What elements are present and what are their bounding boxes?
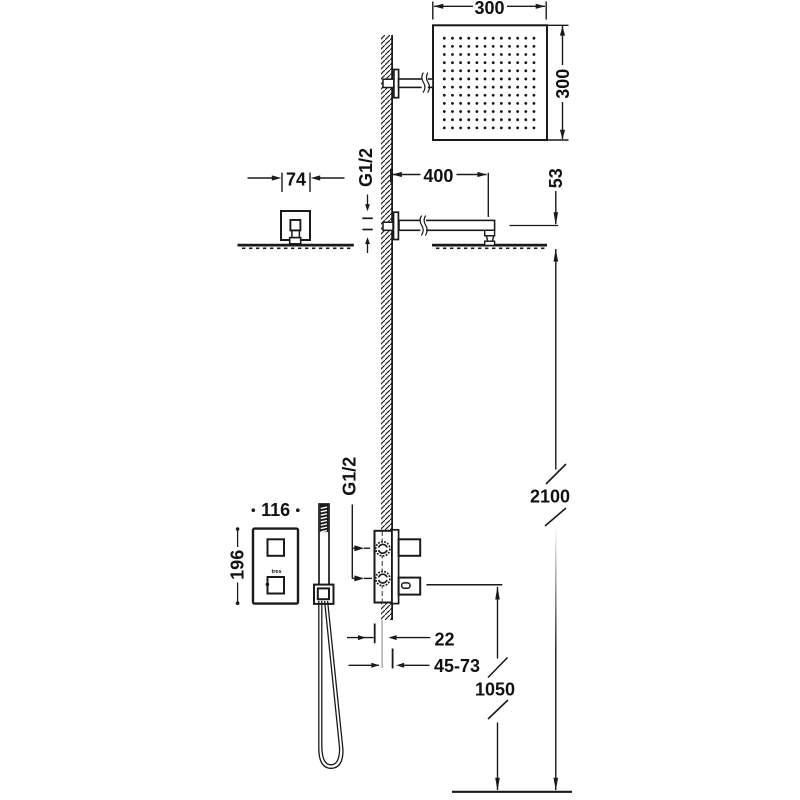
svg-text:74: 74: [286, 170, 306, 190]
svg-text:300: 300: [553, 69, 573, 99]
svg-text:1050: 1050: [475, 679, 515, 699]
svg-text:53: 53: [546, 168, 566, 188]
svg-text:22: 22: [434, 629, 454, 649]
svg-text:400: 400: [423, 166, 453, 186]
svg-text:G1/2: G1/2: [356, 148, 376, 187]
svg-text:300: 300: [474, 0, 504, 18]
svg-text:196: 196: [227, 550, 247, 580]
svg-text:116: 116: [261, 500, 290, 520]
svg-text:tres: tres: [271, 569, 281, 575]
svg-text:2100: 2100: [530, 486, 570, 506]
svg-text:45-73: 45-73: [434, 656, 480, 676]
svg-text:G1/2: G1/2: [339, 457, 359, 496]
